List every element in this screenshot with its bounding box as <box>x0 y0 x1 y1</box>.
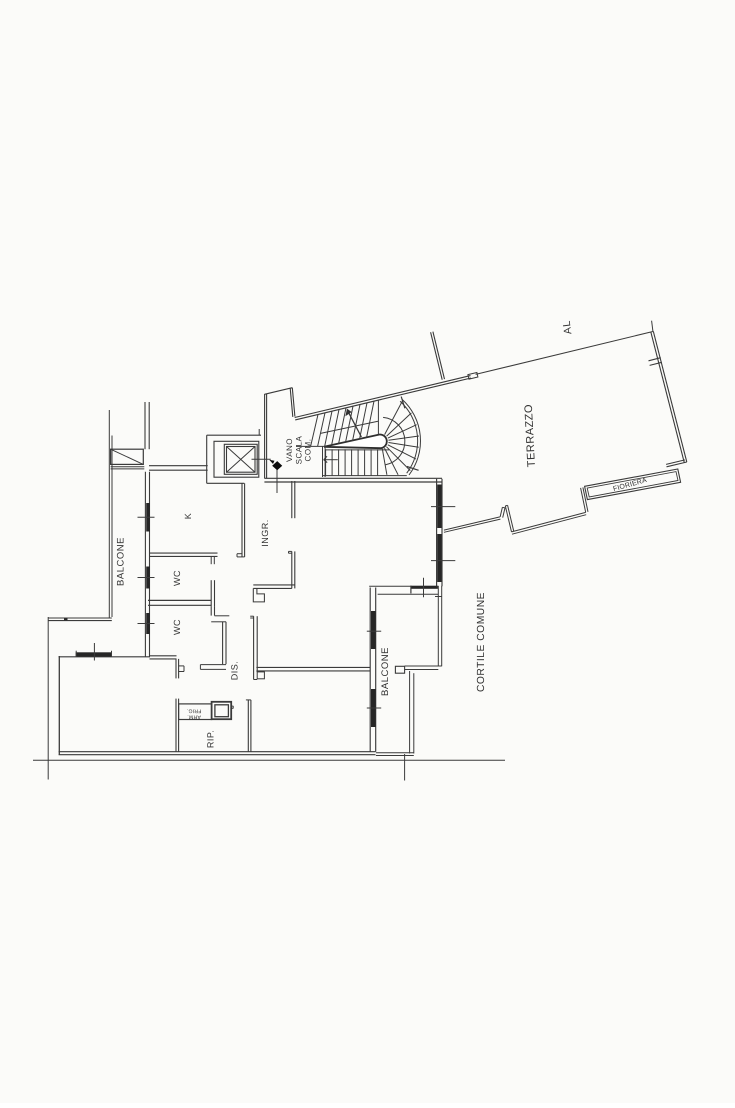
svg-text:DIS.: DIS. <box>230 661 240 681</box>
svg-text:WC: WC <box>172 619 182 635</box>
svg-text:BALCONE: BALCONE <box>116 537 127 586</box>
svg-text:VANO: VANO <box>285 438 294 462</box>
svg-text:COM.: COM. <box>304 439 313 462</box>
svg-text:AL: AL <box>561 320 575 335</box>
svg-text:BALCONE: BALCONE <box>380 647 391 696</box>
svg-text:CORTILE COMUNE: CORTILE COMUNE <box>476 592 487 692</box>
svg-text:K: K <box>183 513 193 520</box>
svg-text:SCALA: SCALA <box>294 435 303 464</box>
svg-text:WC: WC <box>172 570 182 586</box>
svg-text:INGR.: INGR. <box>260 519 270 547</box>
svg-text:ARM.: ARM. <box>187 714 201 720</box>
svg-text:FRIG.: FRIG. <box>187 708 202 714</box>
svg-text:RIP.: RIP. <box>206 730 216 748</box>
